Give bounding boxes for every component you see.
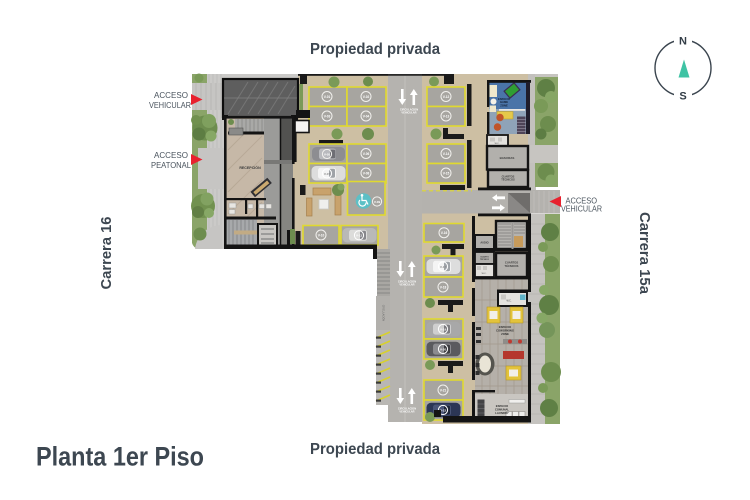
svg-text:V-10: V-10 (318, 233, 325, 237)
svg-text:V-19: V-19 (440, 327, 447, 331)
svg-text:ACCESO: ACCESO (154, 90, 188, 100)
svg-text:AUDIO: AUDIO (480, 241, 488, 245)
svg-text:W.C.: W.C. (495, 143, 500, 145)
svg-text:Carrera 16: Carrera 16 (99, 217, 115, 290)
svg-text:W.C.: W.C. (507, 301, 512, 303)
svg-text:V-20: V-20 (440, 347, 447, 351)
svg-text:Planta 1er Piso: Planta 1er Piso (36, 442, 204, 472)
svg-text:TÉCNICO: TÉCNICO (480, 258, 489, 261)
svg-text:V-12: V-12 (443, 95, 450, 99)
svg-text:VEHICULAR: VEHICULAR (149, 100, 191, 110)
svg-text:V-07: V-07 (324, 172, 331, 176)
svg-text:V-08: V-08 (363, 171, 370, 175)
svg-text:N: N (679, 36, 687, 48)
svg-text:Propiedad privada: Propiedad privada (310, 441, 440, 458)
svg-text:V-17: V-17 (440, 265, 447, 269)
svg-text:VEHICULAR: VEHICULAR (399, 410, 414, 414)
svg-text:CIRCULACIÓN: CIRCULACIÓN (382, 305, 385, 322)
svg-text:ACCESO: ACCESO (154, 150, 188, 160)
svg-text:V-01: V-01 (324, 95, 331, 99)
svg-text:VEHICULAR: VEHICULAR (401, 111, 416, 115)
svg-text:V-05: V-05 (324, 152, 331, 156)
svg-text:V-06: V-06 (363, 152, 370, 156)
svg-text:V-02: V-02 (363, 95, 370, 99)
svg-text:S: S (679, 91, 686, 103)
svg-text:VEHICULAR: VEHICULAR (561, 203, 602, 213)
svg-text:LAUNDRY: LAUNDRY (495, 411, 509, 415)
svg-text:ZONE: ZONE (501, 332, 509, 336)
svg-text:V-11: V-11 (356, 234, 362, 238)
svg-text:W.C.: W.C. (482, 273, 487, 275)
svg-text:V-21: V-21 (440, 388, 447, 392)
svg-text:V-13: V-13 (443, 114, 450, 118)
svg-text:BASURAS: BASURAS (500, 156, 515, 160)
svg-text:V-16: V-16 (441, 231, 448, 235)
svg-text:V-14: V-14 (443, 152, 450, 156)
svg-text:V-04: V-04 (363, 114, 370, 118)
svg-text:Propiedad privada: Propiedad privada (310, 41, 440, 58)
svg-text:V-09: V-09 (374, 200, 381, 204)
svg-text:V-15: V-15 (443, 171, 450, 175)
svg-text:VEHICULAR: VEHICULAR (399, 283, 414, 287)
svg-text:V-03: V-03 (324, 114, 331, 118)
svg-text:RECEPCIÓN: RECEPCIÓN (239, 165, 261, 170)
svg-text:V-18: V-18 (440, 285, 447, 289)
svg-text:ZONE: ZONE (500, 103, 508, 107)
svg-text:PEATONAL: PEATONAL (151, 160, 191, 170)
svg-text:Carrera 15a: Carrera 15a (636, 212, 652, 295)
